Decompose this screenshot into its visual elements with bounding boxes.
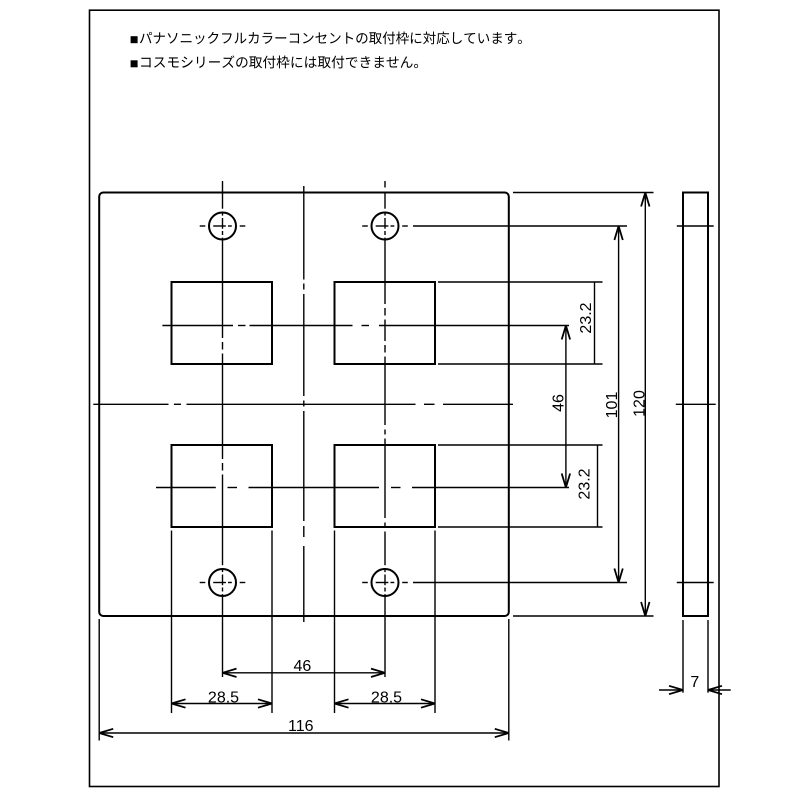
svg-text:23.2: 23.2: [578, 302, 595, 333]
svg-text:116: 116: [288, 718, 314, 735]
svg-text:7: 7: [690, 674, 699, 691]
svg-text:46: 46: [550, 394, 567, 412]
svg-text:46: 46: [294, 658, 312, 675]
svg-text:23.2: 23.2: [576, 468, 593, 499]
svg-text:28.5: 28.5: [371, 690, 402, 707]
svg-text:101: 101: [604, 392, 621, 419]
svg-text:28.5: 28.5: [208, 690, 239, 707]
svg-text:120: 120: [631, 390, 648, 417]
